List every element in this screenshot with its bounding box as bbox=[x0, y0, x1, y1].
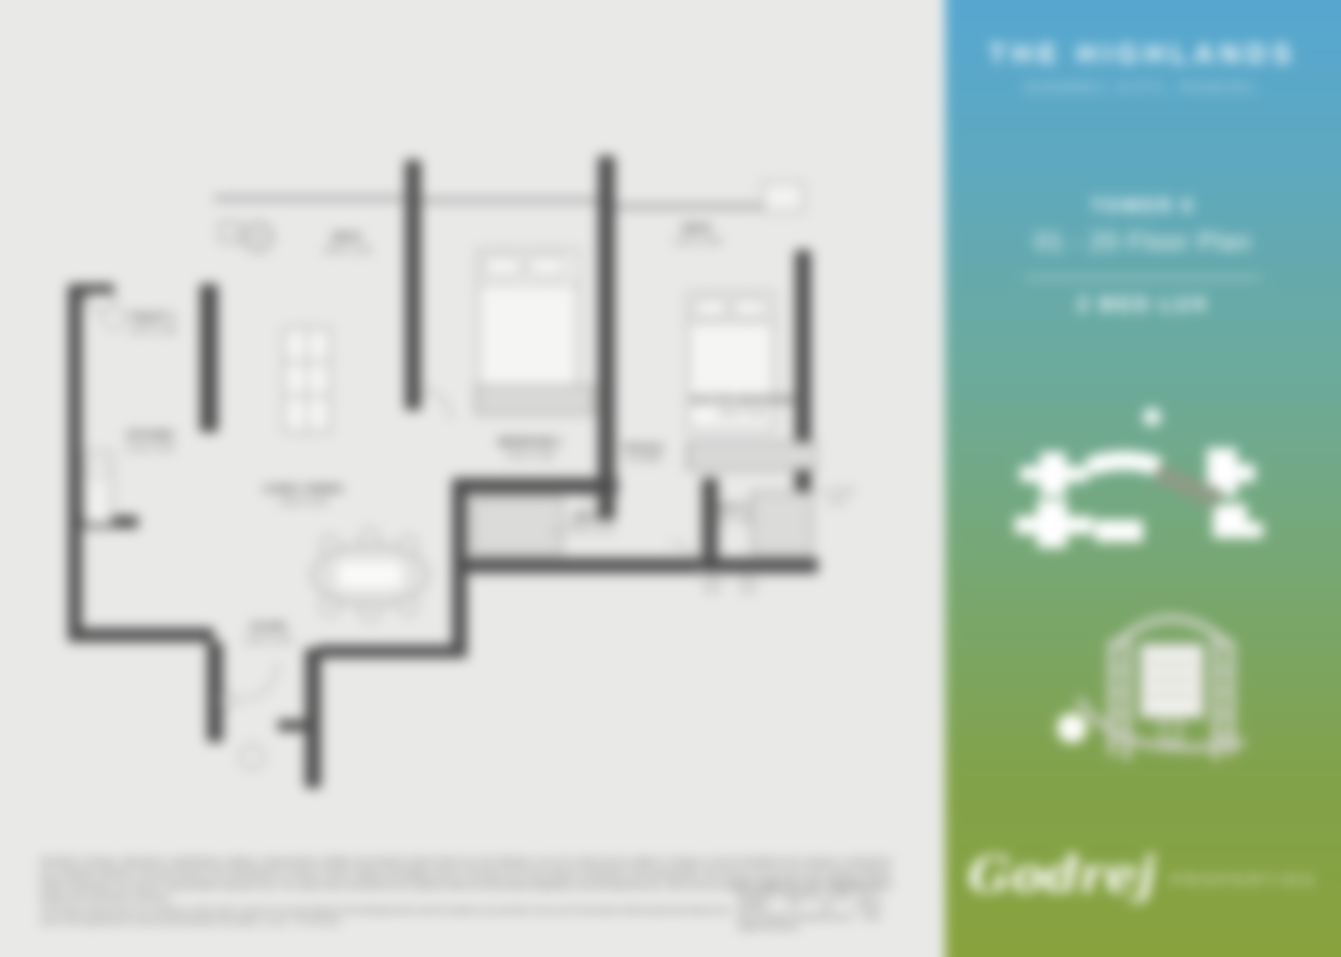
dining-chair bbox=[321, 536, 339, 554]
dining-chair bbox=[399, 597, 417, 615]
building-footprint bbox=[1095, 520, 1143, 542]
rera-registration-text: The project has been registered via Maha… bbox=[737, 880, 881, 933]
room-label: DECK bbox=[682, 222, 712, 234]
location-dot-icon bbox=[1143, 408, 1161, 426]
pillow bbox=[732, 299, 766, 317]
room-dims: 1.45 X 2.45 bbox=[708, 514, 752, 524]
building-footprint bbox=[1085, 451, 1163, 476]
sidebar: THE HIGHLANDS GODREJ CITY, PANVEL TOWER … bbox=[945, 0, 1341, 957]
kitchen-sink bbox=[90, 462, 106, 478]
washbasin bbox=[88, 294, 114, 308]
room-dims: 3.95 X 1.35 bbox=[323, 245, 372, 256]
wall-segment bbox=[452, 478, 618, 494]
room-dims: 3.05 X 6.05 bbox=[279, 497, 328, 508]
room-label: TOILET 1 bbox=[129, 311, 175, 323]
toilet-3-floor bbox=[752, 492, 812, 554]
wall-segment bbox=[200, 284, 218, 432]
building-footprint bbox=[1020, 452, 1088, 496]
blurred-content: DECK 3.95 X 1.35 TOILET 1 1.45 X 2.45 KI… bbox=[0, 0, 1341, 957]
building-footprint bbox=[1015, 500, 1093, 548]
room-dims: 1.45 X 2.45 bbox=[128, 325, 177, 336]
pillow bbox=[528, 256, 566, 276]
wall-segment bbox=[68, 284, 82, 642]
door-arc bbox=[421, 390, 451, 420]
dining-chair bbox=[399, 536, 417, 554]
wall-segment bbox=[305, 648, 321, 788]
window-line bbox=[421, 198, 598, 203]
room-label: FOYER bbox=[250, 621, 287, 633]
wall-segment bbox=[462, 558, 818, 573]
wardrobe-1 bbox=[476, 386, 594, 414]
room-dims: 1.50 X 2.40 bbox=[570, 524, 614, 534]
wall-segment bbox=[795, 250, 811, 522]
window-lines bbox=[214, 196, 795, 209]
dining-chair bbox=[361, 529, 379, 547]
toilet-2-floor bbox=[474, 498, 562, 554]
window-line bbox=[214, 196, 404, 201]
room-dims: 1.50 X 2.40 bbox=[244, 635, 293, 646]
key-plan-icon bbox=[1015, 448, 1263, 548]
dining-chair bbox=[361, 603, 379, 621]
wall-segment bbox=[207, 642, 223, 742]
wall-segment bbox=[318, 645, 458, 658]
pillow bbox=[484, 256, 522, 276]
brochure-page: DECK 3.95 X 1.35 TOILET 1 1.45 X 2.45 KI… bbox=[0, 0, 1341, 957]
room-dims: 3.60 X 3.05 bbox=[718, 408, 767, 419]
pillow bbox=[694, 299, 728, 317]
room-dims: 1.35 X 3.95 bbox=[673, 236, 722, 247]
door-arc bbox=[240, 662, 278, 700]
flower-bed-label: FLOWER bbox=[820, 486, 856, 496]
entry-marker bbox=[240, 745, 264, 769]
room-dims: 2.40 X 3.05 bbox=[126, 443, 175, 454]
properties-label: PROPERTIES bbox=[1171, 872, 1317, 889]
wardrobe-2 bbox=[688, 442, 816, 470]
marker-diamond bbox=[740, 577, 757, 594]
room-label: BEDROOM 1 bbox=[498, 436, 562, 448]
deck-chair bbox=[220, 222, 240, 242]
duct-shaft bbox=[763, 182, 803, 212]
disclaimer-subtext: This printed material does not constitut… bbox=[40, 905, 730, 927]
floor-plan-drawing: DECK 3.95 X 1.35 TOILET 1 1.45 X 2.45 KI… bbox=[0, 0, 945, 860]
room-label: PASSAGE bbox=[623, 442, 664, 452]
wall-segment bbox=[68, 628, 214, 642]
room-label: TOILET 3 bbox=[710, 502, 749, 512]
tower-stem bbox=[1163, 717, 1179, 743]
dining-chair bbox=[321, 597, 339, 615]
walls bbox=[68, 156, 818, 788]
sidebar-graphics bbox=[945, 0, 1341, 957]
floor-plan-panel: DECK 3.95 X 1.35 TOILET 1 1.45 X 2.45 KI… bbox=[0, 0, 965, 957]
deck-table bbox=[243, 222, 273, 252]
room-label: DECK bbox=[332, 231, 362, 243]
flower-bed-label: BED bbox=[829, 497, 846, 507]
wall-segment bbox=[278, 720, 314, 731]
room-label: TOILET 2 bbox=[572, 512, 611, 522]
marker-diamond bbox=[704, 577, 721, 594]
room-label: LIVING / DINING bbox=[263, 483, 344, 495]
room-dims: 3.05 X 3.60 bbox=[506, 450, 555, 461]
entry-marker-small bbox=[221, 693, 235, 707]
wc-fixture bbox=[103, 307, 123, 327]
wall-segment bbox=[702, 478, 718, 573]
developer-logo: Godrej PROPERTIES bbox=[945, 845, 1341, 905]
wall-segment bbox=[598, 156, 615, 520]
room-label: KITCHEN bbox=[127, 429, 174, 441]
godrej-logo: Godrej bbox=[968, 845, 1155, 905]
tower-illustration-icon bbox=[1057, 618, 1245, 760]
room-dims: 1.20 WIDE bbox=[624, 454, 663, 463]
room-label: MASTER BEDROOM bbox=[691, 394, 793, 406]
dining-table-top bbox=[338, 562, 402, 588]
building-footprint bbox=[1213, 504, 1263, 538]
wall-segment bbox=[405, 160, 421, 410]
sphere bbox=[1057, 713, 1087, 743]
